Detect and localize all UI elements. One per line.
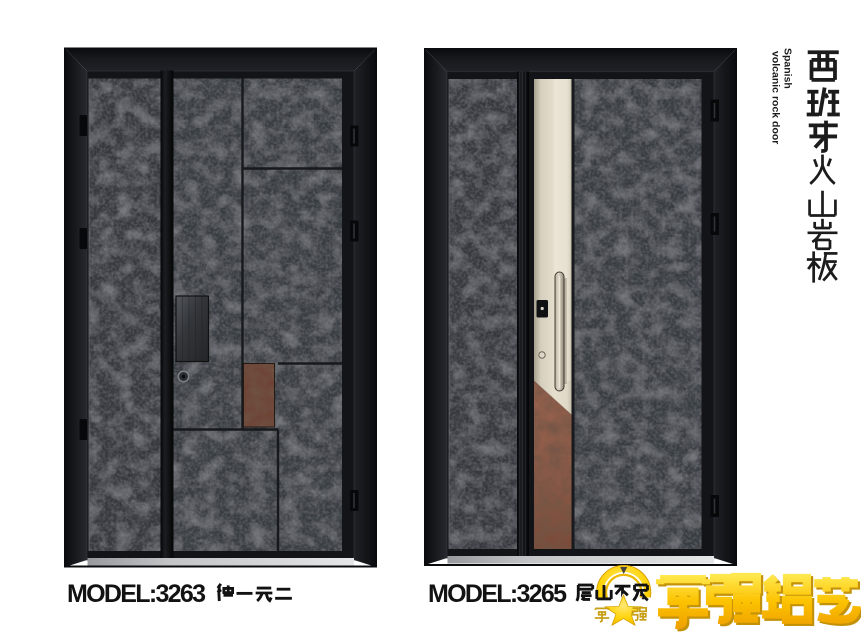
svg-text:MODEL:3265: MODEL:3265 — [428, 580, 567, 608]
svg-text:Spanish: Spanish — [782, 48, 794, 89]
svg-text:volcanic rock door: volcanic rock door — [770, 51, 782, 144]
svg-text:MODEL:3263: MODEL:3263 — [67, 580, 206, 608]
